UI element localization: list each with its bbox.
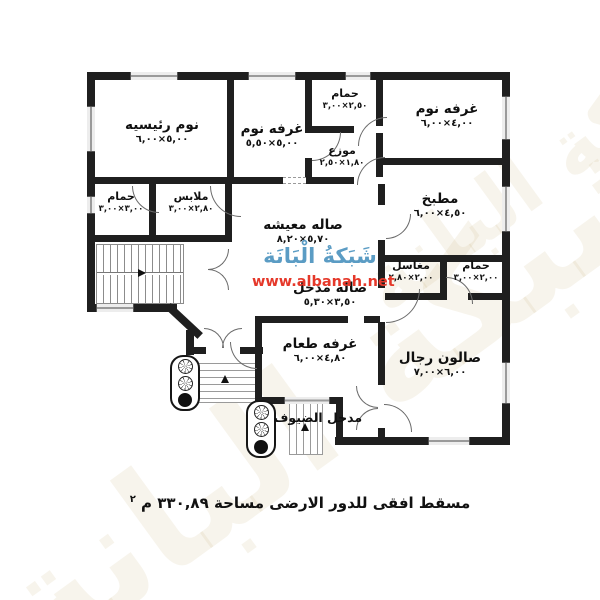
wall-hall-top [306, 177, 354, 184]
wall-exterior-bottom [335, 437, 510, 445]
window [428, 437, 470, 445]
door-arc-main-leaf-1 [204, 328, 224, 348]
plan-caption: مسقط افقى للدور الارضى مساحة ٣٣٠,٨٩ م ٢ [0, 494, 600, 512]
planter [170, 355, 200, 411]
room-label-bath-top: حمام ٢,٥٠×٣,٠٠ [311, 87, 379, 111]
window [96, 304, 134, 312]
room-label-closet: ملابس ٢,٨٠×٣,٠٠ [158, 190, 224, 214]
room-label-bath-mid: حمام ٢,٠٠×٣,٠٠ [445, 259, 507, 283]
window [87, 106, 95, 152]
window [345, 72, 371, 80]
brand-url-watermark: www.albanah.net [252, 274, 388, 290]
floor-plan-page: شبكة البانة شبكة البانة [0, 0, 600, 600]
window [502, 362, 510, 404]
room-label-kitchen: مطبخ ٤,٥٠×٦,٠٠ [395, 191, 485, 220]
wall-spine-c [378, 322, 385, 385]
wall-bedrooms-bottom [87, 177, 283, 184]
room-label-men-salon: صالون رجال ٦,٠٠×٧,٠٠ [395, 350, 485, 379]
door-arc-hall-leaf-1 [208, 249, 229, 270]
room-label-guest-entrance: مدخل الضيوف [268, 410, 368, 426]
wall-porch-door-left [186, 347, 206, 354]
door-arc-main-leaf-2 [222, 328, 242, 348]
plant-icon [178, 376, 193, 391]
wall-salon-top-b [468, 293, 502, 300]
window [284, 397, 330, 404]
room-label-bath-left: حمام ٣,٠٠×٣,٠٠ [88, 190, 154, 214]
window [248, 72, 296, 80]
door-arc-hall-leaf-2 [208, 269, 229, 290]
wall-kitchen-top [383, 158, 502, 165]
plan-caption-text: مسقط افقى للدور الارضى مساحة ٣٣٠,٨٩ م [141, 494, 470, 512]
plan-caption-superscript: ٢ [130, 494, 136, 505]
window [502, 96, 510, 140]
main-steps-arrow [221, 375, 229, 383]
room-label-bedroom-2: غرفه نوم ٥,٠٠×٥,٥٠ [227, 121, 317, 150]
door-arc-bath-top [358, 117, 387, 146]
cased-opening [283, 177, 306, 184]
wall-closet-bottom [87, 235, 232, 242]
brand-watermark: شَبَكةُ الْبَانَة [255, 244, 385, 268]
plant-icon [254, 440, 268, 454]
wall-dining-top-a [262, 316, 348, 323]
room-label-distributor: موزع ١,٨٠×٢,٥٠ [308, 144, 376, 168]
room-label-bedroom-3: غرفه نوم ٤,٠٠×٦,٠٠ [402, 101, 492, 130]
main-entrance-steps [192, 363, 260, 403]
planter [246, 400, 276, 458]
plant-icon [254, 422, 269, 437]
plant-icon [178, 359, 193, 374]
window [130, 72, 178, 80]
stair-direction-arrow [138, 269, 146, 277]
room-label-master-bedroom: نوم رئيسيه ٥,٠٠×٦,٠٠ [117, 117, 207, 146]
wall-dining-top-b [364, 316, 380, 323]
plant-icon [254, 405, 269, 420]
window [502, 186, 510, 232]
wall-spine-a [378, 184, 385, 205]
wall-exterior-diagonal [165, 303, 203, 339]
room-label-dining: غرفه طعام ٤,٨٠×٦,٠٠ [275, 336, 365, 365]
room-label-living-hall: صاله معيشه ٥,٧٠×٨,٢٠ [253, 217, 353, 246]
plant-icon [178, 393, 192, 407]
